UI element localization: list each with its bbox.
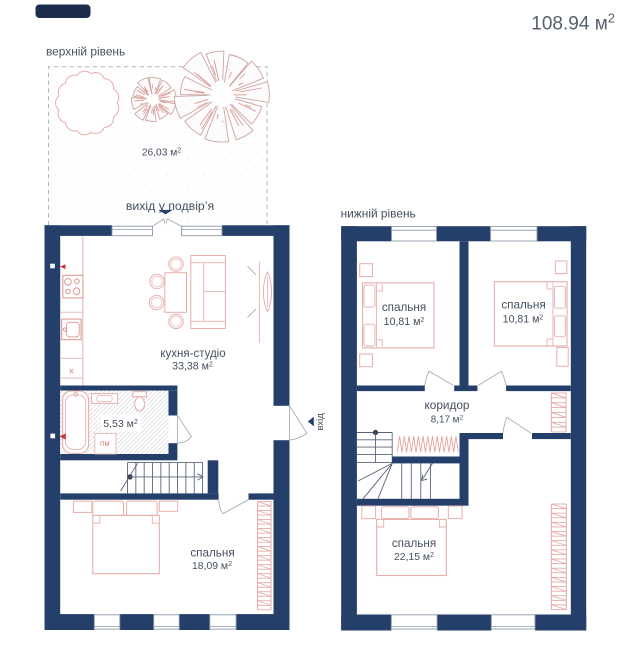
svg-text:спальня: спальня	[382, 301, 426, 314]
svg-text:коридор: коридор	[424, 398, 469, 412]
svg-text:ПМ: ПМ	[100, 442, 109, 448]
svg-text:кухня-студіо: кухня-студіо	[160, 348, 225, 360]
svg-text:22,15 м2: 22,15 м2	[394, 552, 434, 563]
svg-text:18,09 м2: 18,09 м2	[192, 561, 232, 572]
svg-text:10,81 м2: 10,81 м2	[384, 316, 425, 328]
svg-text:вхід: вхід	[315, 413, 326, 431]
svg-text:108.94 м2: 108.94 м2	[531, 11, 615, 35]
svg-text:спальня: спальня	[392, 537, 436, 550]
svg-text:10,81 м2: 10,81 м2	[503, 314, 544, 326]
svg-text:нижній рівень: нижній рівень	[341, 207, 416, 221]
svg-text:26,03 м2: 26,03 м2	[142, 147, 181, 158]
svg-text:5,53 м2: 5,53 м2	[103, 418, 138, 430]
svg-text:верхній рівень: верхній рівень	[46, 45, 125, 59]
svg-text:спальня: спальня	[501, 299, 545, 312]
svg-text:33,38 м2: 33,38 м2	[172, 361, 213, 373]
svg-text:спальня: спальня	[190, 547, 234, 560]
svg-text:8,17 м2: 8,17 м2	[431, 415, 464, 426]
